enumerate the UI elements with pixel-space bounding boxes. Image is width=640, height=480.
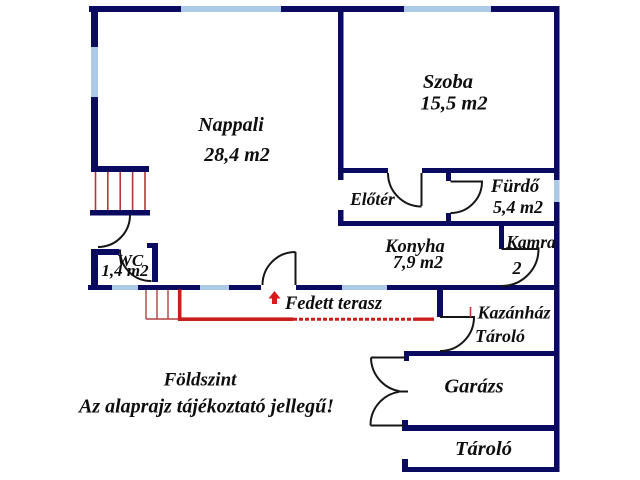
svg-text:Földszint: Földszint	[163, 370, 238, 391]
svg-text:7,9 m2: 7,9 m2	[393, 252, 443, 272]
svg-text:Kamra: Kamra	[505, 232, 556, 252]
svg-text:15,5 m2: 15,5 m2	[420, 93, 487, 115]
svg-text:Szoba: Szoba	[423, 71, 473, 93]
svg-text:Tároló: Tároló	[475, 326, 525, 346]
svg-text:Tároló: Tároló	[455, 438, 512, 460]
svg-text:Előtér: Előtér	[349, 189, 395, 209]
svg-text:2: 2	[512, 258, 522, 278]
svg-text:28,4 m2: 28,4 m2	[203, 144, 270, 166]
svg-text:Fedett terasz: Fedett terasz	[284, 294, 383, 314]
svg-text:5,4 m2: 5,4 m2	[493, 197, 543, 217]
svg-text:Kazánház: Kazánház	[476, 303, 550, 323]
svg-text:1,4 m2: 1,4 m2	[101, 261, 149, 280]
svg-text:Fürdő: Fürdő	[490, 177, 541, 197]
svg-text:Garázs: Garázs	[444, 376, 503, 398]
svg-text:Nappali: Nappali	[197, 114, 264, 136]
svg-text:Az alaprajz tájékoztató jelleg: Az alaprajz tájékoztató jellegű!	[77, 396, 334, 418]
